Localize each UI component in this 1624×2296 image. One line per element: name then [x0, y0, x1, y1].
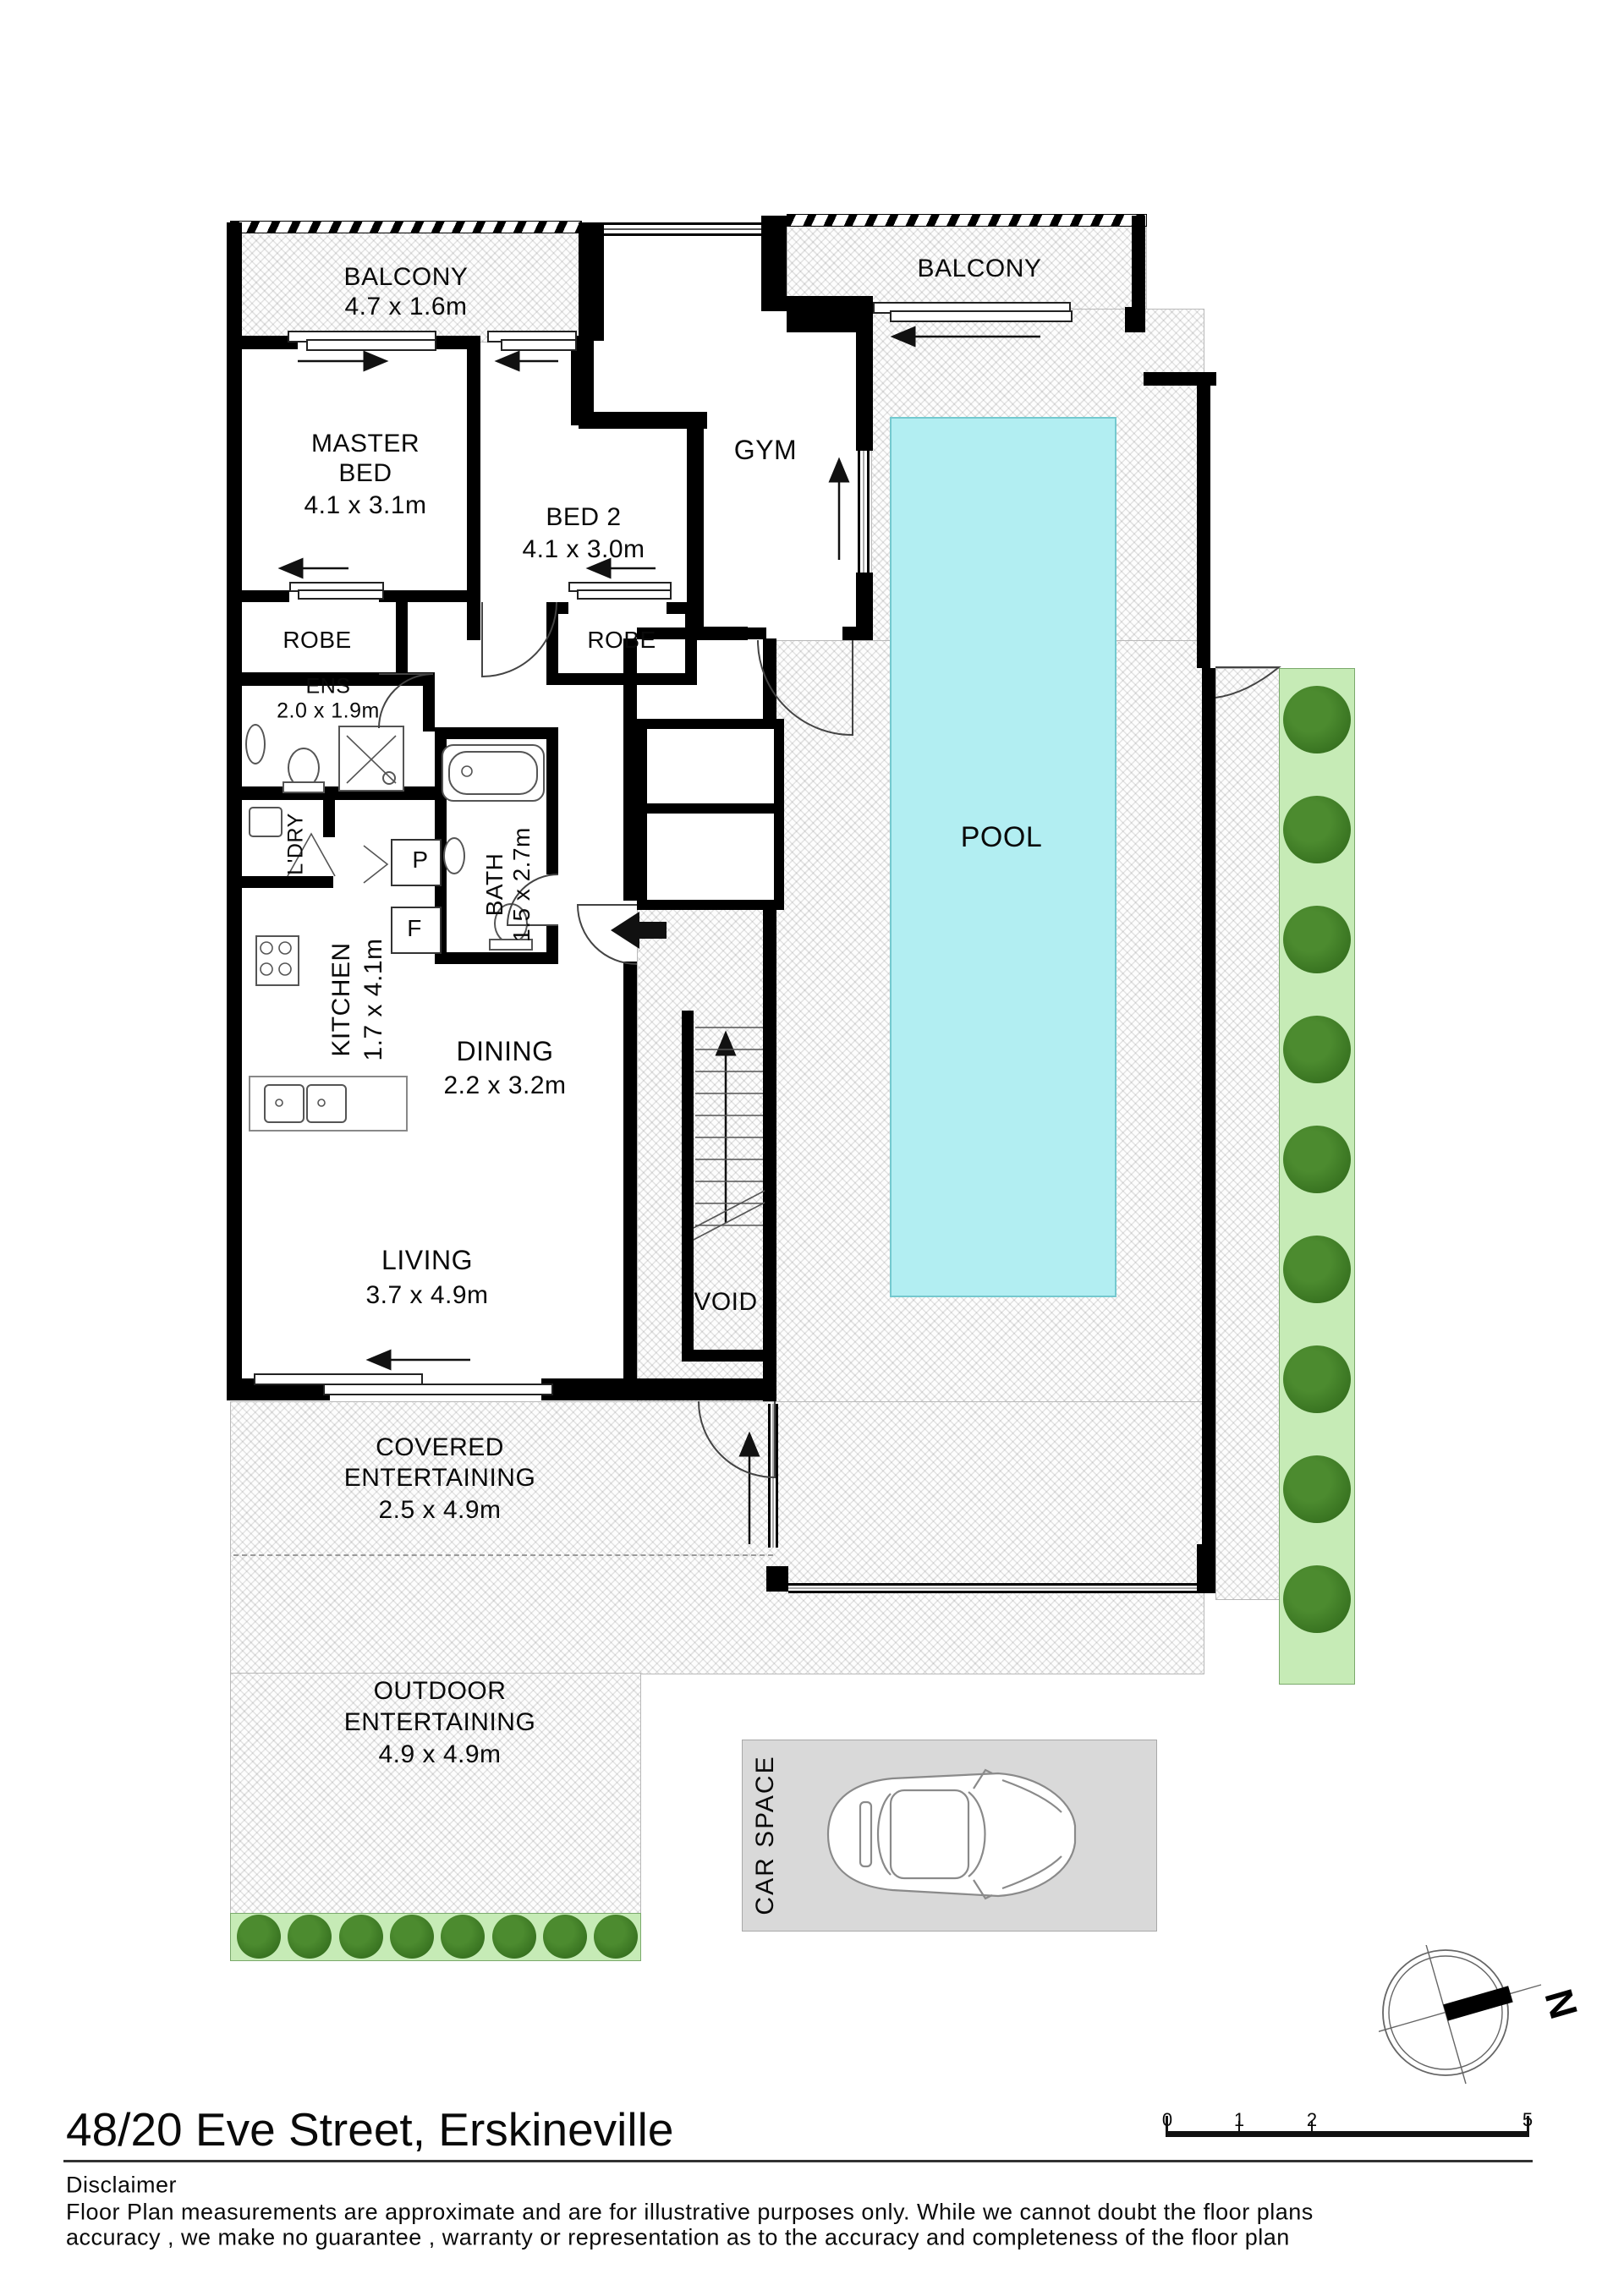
outdoor-entertaining-dims: 4.9 x 4.9m	[378, 1742, 501, 1767]
title-divider	[63, 2160, 1533, 2162]
tree-icon	[1283, 1016, 1351, 1083]
wall	[227, 222, 242, 1400]
tree-icon	[1283, 1345, 1351, 1413]
door-swing	[482, 602, 557, 677]
robe-right-label: ROBE	[587, 628, 656, 652]
door-swing	[578, 905, 637, 964]
tree-icon	[339, 1915, 383, 1959]
compass-needle	[1443, 1986, 1513, 2020]
sliding-door	[577, 589, 672, 600]
balcony-left-dims: 4.7 x 1.6m	[344, 294, 467, 320]
tree-icon	[1283, 1455, 1351, 1523]
laundry-label: L'DRY	[286, 813, 307, 875]
wall	[546, 739, 558, 874]
wall	[856, 311, 873, 451]
wall	[379, 590, 480, 602]
pool-label: POOL	[961, 823, 1042, 852]
sliding-door	[501, 339, 577, 351]
wall	[546, 673, 697, 685]
laundry-sink	[249, 807, 283, 837]
wall	[761, 216, 787, 309]
compass-north-label: N	[1536, 1984, 1582, 2023]
kitchen-label: KITCHEN	[329, 942, 354, 1056]
tree-icon	[237, 1915, 281, 1959]
dining-dims: 2.2 x 3.2m	[443, 1073, 566, 1099]
tree-icon	[543, 1915, 587, 1959]
tree-icon	[1283, 1236, 1351, 1303]
living-dims: 3.7 x 4.9m	[365, 1283, 488, 1308]
pool	[890, 417, 1116, 1297]
page-title: 48/20 Eve Street, Erskineville	[66, 2102, 673, 2156]
wall	[1202, 668, 1215, 1590]
ensuite-dims: 2.0 x 1.9m	[277, 701, 380, 722]
window	[604, 222, 761, 236]
bed2-dims: 4.1 x 3.0m	[522, 537, 645, 562]
sliding-door	[298, 589, 384, 600]
railing-left-balcony	[230, 221, 582, 233]
disclaimer-heading: Disclaimer	[66, 2174, 177, 2197]
wall	[842, 627, 873, 640]
covered-entertaining-dims: 2.5 x 4.9m	[378, 1498, 501, 1523]
floor-plan-page: POOL	[0, 0, 1624, 2296]
car-space-area	[742, 1740, 1157, 1932]
bed2-label: BED 2	[546, 505, 621, 530]
gate-panel	[768, 1404, 778, 1548]
tree-icon	[1283, 1126, 1351, 1193]
sink	[306, 1084, 347, 1123]
outdoor-entertaining-label-1: OUTDOOR	[374, 1679, 507, 1704]
sliding-door	[890, 310, 1073, 322]
tree-icon	[390, 1915, 434, 1959]
basin	[443, 837, 465, 874]
fridge-label: F	[407, 917, 422, 940]
gym-label: GYM	[734, 436, 797, 463]
balcony-left-label: BALCONY	[344, 265, 469, 290]
covered-entertaining-label-2: ENTERTAINING	[344, 1466, 536, 1491]
scale-tick-0: 0	[1162, 2109, 1172, 2131]
balcony-right-label: BALCONY	[918, 256, 1042, 282]
scale-tick-5: 5	[1522, 2109, 1533, 2131]
cooktop	[255, 935, 299, 986]
garden-strip-right	[1279, 668, 1355, 1685]
scale-bar: 0 1 2 5	[1166, 2109, 1533, 2145]
pantry-label: P	[412, 848, 428, 872]
wall	[1132, 216, 1145, 309]
wall	[623, 962, 637, 1380]
outdoor-entertaining-label-2: ENTERTAINING	[344, 1710, 536, 1735]
storage-room	[637, 803, 784, 910]
wall	[242, 590, 289, 602]
bath-dims: 1.5 x 2.7m	[510, 827, 534, 942]
wall	[1144, 372, 1216, 386]
sink	[264, 1084, 304, 1123]
void-label: VOID	[694, 1290, 757, 1315]
side-path	[1215, 668, 1281, 1600]
shower-drain	[382, 771, 396, 785]
compass: N	[1379, 1945, 1582, 2097]
robe-left-label: ROBE	[283, 628, 351, 652]
master-bed-dims: 4.1 x 3.1m	[304, 493, 426, 518]
toilet-tank	[283, 781, 325, 793]
wall	[423, 672, 435, 732]
entry-court	[637, 884, 767, 1403]
scale-tick-1: 1	[1234, 2109, 1244, 2131]
scale-tick-2: 2	[1307, 2109, 1317, 2131]
tree-icon	[1283, 796, 1351, 863]
wall	[1125, 307, 1145, 332]
wall	[623, 638, 637, 901]
wall	[787, 307, 856, 332]
wall	[766, 1566, 788, 1592]
railing-right-balcony	[787, 214, 1147, 227]
wall	[579, 222, 604, 341]
basin	[245, 724, 266, 764]
tree-icon	[288, 1915, 332, 1959]
window	[858, 451, 870, 573]
sliding-door	[306, 339, 436, 351]
tree-icon	[1283, 906, 1351, 973]
ensuite-label: ENS	[306, 677, 351, 698]
car-space-label: CAR SPACE	[753, 1755, 778, 1915]
bath-label: BATH	[483, 853, 507, 917]
wall	[1197, 386, 1210, 668]
tree-icon	[492, 1915, 536, 1959]
master-bed-label-1: MASTER	[311, 431, 420, 457]
disclaimer-line-1: Floor Plan measurements are approximate …	[66, 2201, 1314, 2224]
wall	[541, 1378, 766, 1400]
bathtub-inner	[448, 751, 538, 795]
wall	[435, 727, 558, 739]
wall	[227, 876, 333, 888]
wall	[1197, 1544, 1215, 1593]
wall	[682, 1011, 694, 1362]
disclaimer-line-2: accuracy , we make no guarantee , warran…	[66, 2227, 1290, 2249]
tree-icon	[594, 1915, 638, 1959]
garden-strip-bottom	[230, 1913, 641, 1961]
tree-icon	[1283, 686, 1351, 753]
tree-icon	[441, 1915, 485, 1959]
sliding-door	[323, 1384, 553, 1395]
wall	[435, 952, 558, 964]
covered-entertaining-label-1: COVERED	[376, 1435, 504, 1460]
pool-fence	[788, 1583, 1197, 1593]
kitchen-dims: 1.7 x 4.1m	[361, 938, 387, 1060]
living-label: LIVING	[381, 1247, 473, 1274]
wall	[637, 627, 766, 639]
dining-label: DINING	[457, 1038, 554, 1065]
area-divider-line	[233, 1554, 773, 1556]
wall	[323, 800, 335, 837]
master-bed-label-2: BED	[338, 461, 392, 486]
tree-icon	[1283, 1565, 1351, 1633]
